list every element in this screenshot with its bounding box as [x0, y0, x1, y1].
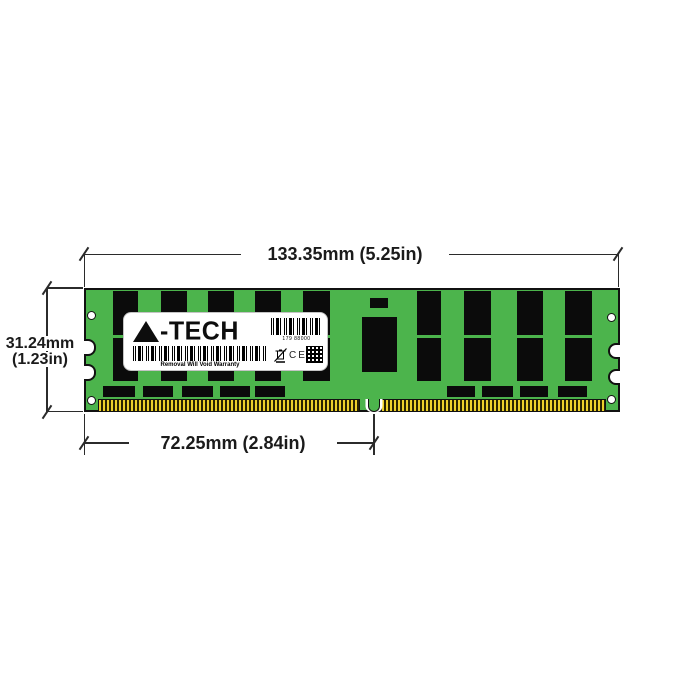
component-chip — [558, 386, 587, 397]
qr-code-icon — [306, 346, 323, 363]
component-chip — [143, 386, 173, 397]
dram-chip — [464, 291, 491, 335]
mounting-hole — [87, 311, 96, 320]
barcode-wide — [133, 346, 267, 361]
dimension-height-label-in: (1.23in) — [2, 352, 78, 367]
dimension-bottom-ext-right — [373, 414, 375, 455]
dimension-left-ext-top — [47, 287, 83, 289]
key-notch — [368, 399, 380, 412]
serial-number: 179 88000 — [271, 336, 322, 342]
edge-notch — [608, 369, 620, 385]
edge-notch — [84, 364, 96, 381]
weee-crossed-bin-icon — [274, 347, 287, 363]
dram-chip — [464, 338, 491, 381]
logo-letter-a-icon — [133, 321, 159, 342]
dimension-top-ext-right — [618, 254, 620, 287]
dram-chip — [517, 291, 543, 335]
component-chip — [182, 386, 213, 397]
dram-chip — [565, 291, 592, 335]
component-chip — [255, 386, 285, 397]
product-label: -TECH 179 88000 Removal Will Void Warran… — [123, 312, 328, 371]
dimension-height-label-mm: 31.24mm — [2, 336, 78, 351]
dram-chip — [565, 338, 592, 381]
component-chip — [482, 386, 513, 397]
ce-mark: CE — [289, 350, 307, 361]
dimension-left-ext-bottom — [47, 411, 83, 413]
warranty-text: Removal Will Void Warranty — [133, 362, 267, 368]
logo-text: -TECH — [160, 320, 239, 342]
ram-module-product-image: -TECH 179 88000 Removal Will Void Warran… — [0, 0, 700, 700]
dimension-bottom-ext-left — [84, 414, 86, 455]
mounting-hole — [607, 313, 616, 322]
pcb-board: -TECH 179 88000 Removal Will Void Warran… — [84, 288, 620, 412]
barcode-small — [271, 318, 322, 335]
edge-notch — [84, 339, 96, 356]
mounting-hole — [607, 395, 616, 404]
dram-chip — [417, 338, 441, 381]
component-chip — [370, 298, 388, 308]
component-chip — [520, 386, 548, 397]
dimension-width-label: 133.35mm (5.25in) — [241, 245, 449, 263]
dimension-pin-span-label: 72.25mm (2.84in) — [129, 434, 337, 452]
component-chip — [220, 386, 250, 397]
atech-logo: -TECH — [133, 318, 239, 344]
pin-row-left — [98, 399, 360, 412]
component-chip — [447, 386, 475, 397]
dimension-top-ext-left — [84, 254, 86, 287]
dram-chip — [517, 338, 543, 381]
component-chip — [103, 386, 135, 397]
dram-chip — [417, 291, 441, 335]
mounting-hole — [87, 396, 96, 405]
register-chip — [362, 317, 397, 372]
pin-row-right — [381, 399, 606, 412]
edge-notch — [608, 343, 620, 359]
